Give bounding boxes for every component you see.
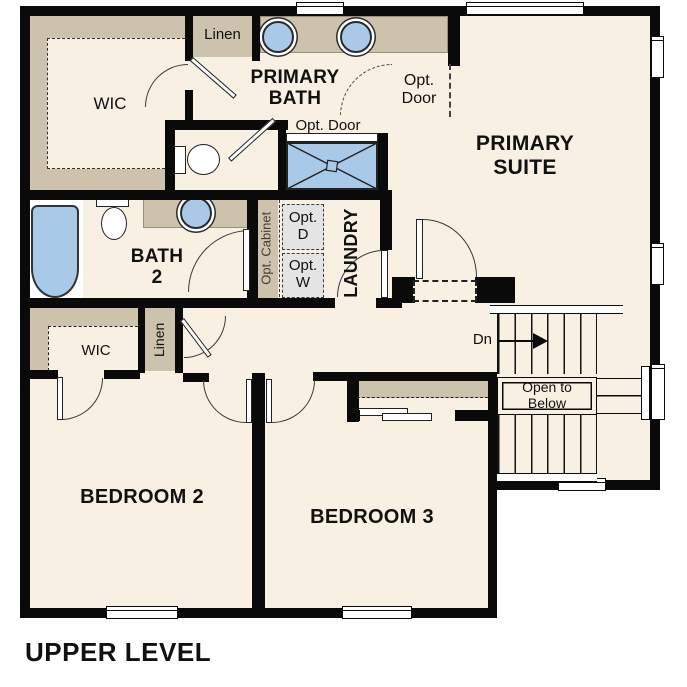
wall: [247, 193, 257, 233]
label-bedroom3: BEDROOM 3: [272, 506, 472, 528]
bedroom3-closet-shelf: [357, 379, 488, 398]
wall: [138, 300, 145, 373]
stair-rail-top: [490, 305, 623, 314]
wall: [448, 16, 460, 66]
shower: [286, 142, 378, 190]
wall: [455, 410, 488, 421]
window: [651, 36, 664, 78]
label-primary-bath: PRIMARY BATH: [225, 67, 365, 110]
suite-door-threshold: [413, 280, 477, 302]
label-opt-door-shower: Opt. Door: [278, 118, 378, 135]
door-leaf-bedroom2-wic: [57, 377, 63, 420]
label-opt-cabinet: Opt. Cabinet: [260, 198, 275, 298]
label-opt-dryer: Opt. D: [285, 210, 321, 244]
stair-treads-lower: [497, 415, 597, 475]
label-opt-washer: Opt. W: [285, 258, 321, 292]
wall: [380, 190, 392, 250]
wall: [392, 277, 415, 303]
door-leaf-bedroom3: [266, 379, 272, 423]
toilet-bowl-bath2: [101, 207, 127, 240]
bedroom3-closet-dash: [357, 397, 488, 398]
wall: [20, 6, 30, 618]
wall: [20, 370, 58, 379]
stair-rail-bottom: [497, 473, 597, 482]
primary-sink-left: [262, 21, 294, 53]
wall: [378, 133, 388, 190]
toilet-bowl-wc: [187, 144, 220, 175]
label-bedroom2: BEDROOM 2: [42, 486, 242, 508]
opt-door-dash-line: [449, 64, 451, 117]
toilet-tank-wc: [174, 146, 186, 174]
wall: [175, 300, 183, 373]
stair-newel: [641, 366, 650, 420]
wall: [165, 120, 175, 190]
window: [342, 606, 412, 619]
wall: [104, 370, 140, 379]
wall: [488, 372, 497, 618]
wall: [252, 16, 260, 61]
label-stairs-down: Dn: [452, 332, 492, 349]
window: [651, 364, 665, 420]
label-primary-wic: WIC: [75, 94, 145, 113]
bath2-sink: [180, 197, 212, 229]
window: [296, 2, 344, 15]
bypass-door-right: [382, 413, 432, 421]
label-open-to-below: Open to Below: [507, 380, 587, 411]
door-leaf-bath2: [243, 229, 250, 291]
wall: [475, 277, 515, 303]
stair-landing-lines: [597, 378, 641, 414]
stairs-down-arrow-head: [533, 333, 548, 349]
label-opt-door-suite: Opt. Door: [394, 72, 444, 108]
door-leaf-primary-suite: [416, 219, 423, 279]
stairs-down-arrow-line: [497, 340, 535, 342]
door-leaf-laundry: [381, 250, 388, 298]
wall: [185, 16, 193, 61]
label-linen-hall: Linen: [152, 305, 168, 375]
label-laundry: LAUNDRY: [341, 203, 361, 303]
wall: [313, 372, 490, 381]
wall: [347, 410, 360, 421]
wall: [20, 190, 392, 200]
opt-cabinet-dash-line: [279, 200, 280, 297]
label-bath2: BATH 2: [125, 246, 189, 289]
wall: [247, 290, 257, 308]
page-title: UPPER LEVEL: [25, 638, 325, 667]
label-bedroom2-wic: WIC: [68, 343, 124, 360]
label-primary-suite: PRIMARY SUITE: [450, 132, 600, 179]
wall: [252, 373, 265, 618]
door-leaf-bedroom2: [246, 379, 252, 423]
label-linen-top: Linen: [193, 27, 252, 44]
floor-plan: WIC Linen PRIMARY BATH Opt. Door Opt. Do…: [0, 0, 687, 687]
bathtub: [31, 205, 79, 298]
wall: [278, 130, 286, 190]
primary-sink-right: [340, 21, 372, 53]
window: [466, 2, 584, 15]
window: [651, 243, 664, 285]
window: [106, 606, 178, 619]
